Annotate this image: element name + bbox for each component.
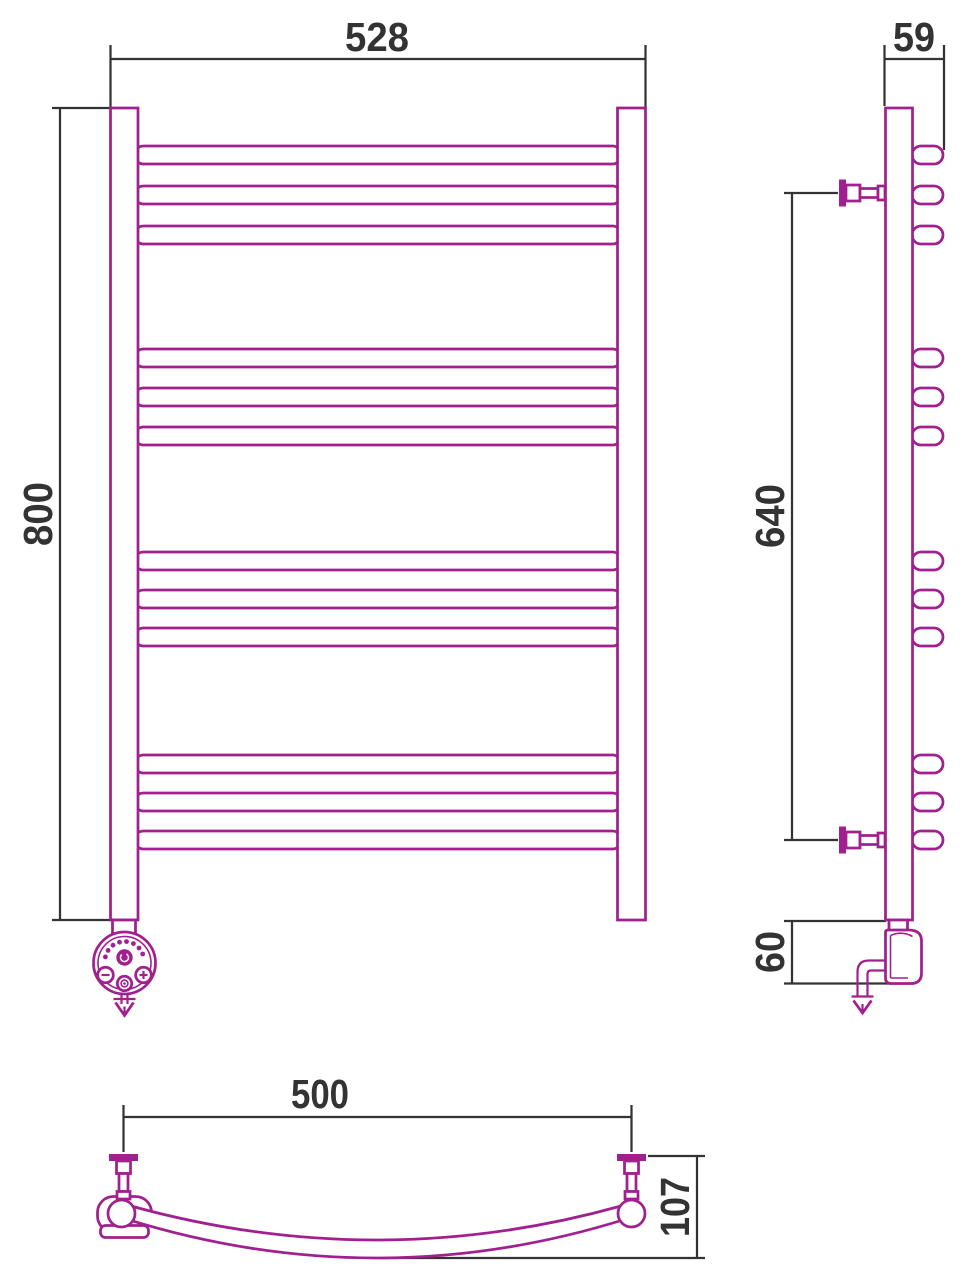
knob-dot xyxy=(140,952,145,957)
side-rung-stub xyxy=(912,552,943,570)
front-rung xyxy=(135,793,622,811)
bracket-flange xyxy=(117,1192,130,1200)
front-rung xyxy=(135,831,622,849)
side-rung-stub xyxy=(912,186,943,204)
bracket-collar xyxy=(846,185,860,201)
knob-dot xyxy=(117,940,122,945)
side-rung-stub xyxy=(912,590,943,608)
bracket-flange xyxy=(625,1192,638,1200)
side-rung-stub xyxy=(912,388,943,406)
front-right-post xyxy=(618,108,646,920)
bracket-collar xyxy=(846,832,860,848)
bracket-neck xyxy=(119,1174,128,1192)
side-rung-stub xyxy=(912,831,943,849)
bottom-left-post-section xyxy=(108,1200,135,1227)
mode-dot-icon xyxy=(123,982,126,985)
side-rung-stub xyxy=(912,628,943,646)
side-post xyxy=(886,108,913,920)
bracket-neck xyxy=(860,189,878,198)
knob-dot xyxy=(131,941,136,946)
bottom-right-post-section xyxy=(618,1200,645,1227)
front-rung xyxy=(135,186,622,204)
knob-dot xyxy=(103,955,108,960)
power-button xyxy=(116,949,132,965)
towel-rail-technical-drawing: 528 800 xyxy=(0,0,965,1280)
front-rung xyxy=(135,388,622,406)
bottom-span-label: 500 xyxy=(291,1071,349,1117)
front-rung xyxy=(135,349,622,367)
knob-dot xyxy=(106,948,111,953)
front-rung xyxy=(135,427,622,445)
side-heater-height-label: 60 xyxy=(747,931,793,973)
front-left-post xyxy=(111,108,139,920)
front-rung xyxy=(135,590,622,608)
side-rung-stub xyxy=(912,427,943,445)
side-depth-label: 59 xyxy=(893,14,935,60)
knob-dot xyxy=(111,943,116,948)
front-rung xyxy=(135,226,622,244)
side-rung-stub xyxy=(912,793,943,811)
front-rung xyxy=(135,628,622,646)
knob-dot xyxy=(124,939,129,944)
bracket-flange xyxy=(878,833,885,847)
front-rung xyxy=(135,552,622,570)
front-height-label: 800 xyxy=(15,482,61,546)
front-rung xyxy=(135,146,622,164)
side-bracket-span-label: 640 xyxy=(747,484,793,548)
side-rung-stub xyxy=(912,349,943,367)
bottom-bow-depth-label: 107 xyxy=(652,1177,698,1237)
bracket-collar xyxy=(625,1161,639,1174)
side-rung-stub xyxy=(912,226,943,244)
bracket-neck xyxy=(627,1174,636,1192)
drawing-canvas: 528 800 xyxy=(0,0,965,1280)
bracket-flange xyxy=(878,186,885,200)
bracket-neck xyxy=(860,836,878,845)
front-width-label: 528 xyxy=(345,14,409,60)
knob-dot xyxy=(137,946,142,951)
bracket-collar xyxy=(117,1161,131,1174)
side-rung-stub xyxy=(912,755,943,773)
front-rung xyxy=(135,755,622,773)
side-rung-stub xyxy=(912,146,943,164)
